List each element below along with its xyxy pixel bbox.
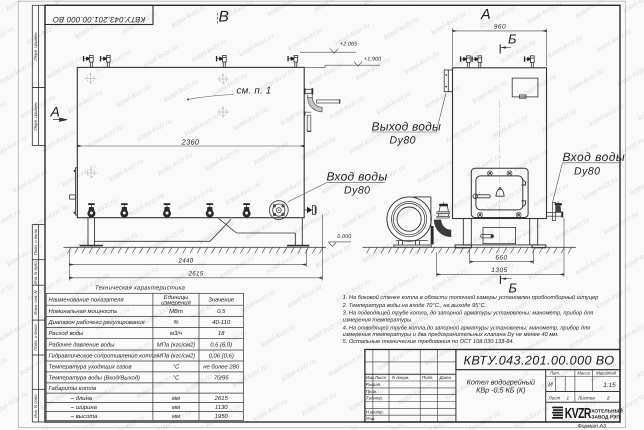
svg-text:0,6 (6,0): 0,6 (6,0) (210, 342, 232, 349)
svg-text:Н.контр.: Н.контр. (366, 409, 384, 414)
svg-text:Пров.: Пров. (366, 389, 377, 394)
svg-text:960: 960 (494, 24, 506, 31)
svg-text:Взам. инв. N: Взам. инв. N (33, 289, 38, 314)
svg-text:70/95: 70/95 (214, 375, 229, 382)
svg-text:%: % (173, 319, 178, 326)
svg-text:КОТЕЛЬНЫЙ: КОТЕЛЬНЫЙ (592, 408, 624, 415)
svg-text:Перв. примен.: Перв. примен. (33, 31, 38, 60)
svg-text:Лит.: Лит. (549, 371, 560, 376)
svg-text:Т.контр.: Т.контр. (366, 396, 383, 401)
svg-text:3. На подводящей трубе котла,: 3. На подводящей трубе котла, до запорно… (343, 310, 594, 317)
svg-text:Формат А3: Формат А3 (578, 424, 606, 430)
svg-text:Вход воды: Вход воды (563, 150, 626, 164)
svg-text:Утв.: Утв. (366, 416, 376, 421)
svg-text:2440: 2440 (178, 257, 194, 264)
svg-text:КВТУ.043.201.00.000 ВО: КВТУ.043.201.00.000 ВО (464, 354, 615, 368)
svg-text:– высота: – высота (70, 414, 98, 420)
svg-text:Габариты котла: Габариты котла (49, 385, 97, 392)
svg-text:В: В (219, 9, 229, 26)
svg-text:КВТУ.043.201.00.000 ВО: КВТУ.043.201.00.000 ВО (53, 15, 145, 24)
svg-text:1: 1 (567, 395, 570, 400)
svg-text:Рабочее давление воды: Рабочее давление воды (49, 342, 116, 349)
svg-text:Инв. N подл.: Инв. N подл. (33, 393, 38, 417)
svg-text:Расход воды: Расход воды (49, 330, 85, 337)
svg-text:2360: 2360 (181, 137, 200, 146)
svg-text:ЗАВОД РЭП: ЗАВОД РЭП (592, 415, 621, 421)
svg-text:Диапазон рабочего регулировани: Диапазон рабочего регулирования (48, 319, 146, 326)
svg-text:Значение: Значение (208, 297, 235, 304)
svg-text:– длина: – длина (70, 395, 93, 402)
svg-text:Техническая характеристика: Техническая характеристика (95, 285, 186, 292)
svg-text:– ширина: – ширина (70, 405, 98, 411)
svg-text:Масса: Масса (577, 371, 590, 376)
svg-text:мм: мм (172, 414, 180, 420)
svg-text:МВт: МВт (169, 308, 183, 315)
svg-text:1950: 1950 (215, 413, 229, 420)
svg-text:А: А (480, 7, 491, 23)
svg-text:Дата: Дата (439, 375, 452, 380)
svg-text:0,06 (0,6): 0,06 (0,6) (209, 353, 234, 360)
svg-text:А: А (50, 104, 60, 120)
svg-text:KVZR: KVZR (565, 406, 592, 422)
svg-text:Вход воды: Вход воды (327, 170, 388, 184)
svg-text:МПа (кгс/см2): МПа (кгс/см2) (157, 342, 196, 349)
svg-text:мм: мм (172, 396, 180, 402)
svg-text:1130: 1130 (215, 404, 228, 411)
svg-text:0,5: 0,5 (217, 308, 226, 315)
svg-text:МПа (кгс/см2): МПа (кгс/см2) (157, 353, 196, 360)
svg-text:измерения температуры.: измерения температуры. (343, 318, 413, 324)
svg-text:Инв. N дубл.: Инв. N дубл. (33, 260, 38, 284)
svg-text:Температура уходящих газов: Температура уходящих газов (49, 364, 132, 371)
svg-text:Разраб.: Разраб. (366, 382, 382, 387)
svg-text:°С: °С (173, 375, 180, 382)
svg-text:1. На боковой стенке котла в: 1. На боковой стенке котла в области топ… (343, 294, 599, 301)
svg-text:Подп. и дата: Подп. и дата (33, 324, 38, 351)
svg-text:Изм.Лист: Изм.Лист (366, 375, 387, 380)
svg-text:Масштаб: Масштаб (596, 371, 617, 376)
svg-text:2: 2 (606, 395, 610, 400)
svg-text:+2.065: +2.065 (340, 42, 358, 48)
svg-text:Наименование показателя: Наименование показателя (49, 297, 125, 304)
svg-text:Температура воды (Вход/Выход): Температура воды (Вход/Выход) (49, 375, 140, 382)
svg-text:измерения: измерения (161, 300, 191, 306)
svg-text:Dy80: Dy80 (390, 135, 417, 147)
svg-text:Подп. и дата: Подп. и дата (33, 228, 38, 255)
svg-text:измерения температуры и два пр: измерения температуры и два предохраните… (343, 331, 559, 338)
svg-text:Б: Б (509, 281, 518, 296)
svg-text:N докум.: N докум. (392, 375, 409, 380)
svg-text:Номинальная мощность: Номинальная мощность (49, 308, 118, 315)
svg-text:4. На отводящей трубе котла,д: 4. На отводящей трубе котла,до запорной … (343, 324, 590, 331)
svg-text:Б: Б (508, 32, 517, 47)
svg-text:Гидравлическое сопротивление к: Гидравлическое сопротивление котла (49, 353, 158, 360)
svg-text:Выход воды: Выход воды (372, 120, 441, 134)
svg-text:40-110: 40-110 (212, 319, 231, 326)
svg-text:2615: 2615 (214, 395, 229, 402)
svg-text:1:15: 1:15 (603, 382, 616, 389)
svg-text:°С: °С (173, 364, 180, 371)
svg-text:см. п. 1: см. п. 1 (237, 86, 272, 97)
svg-text:Перв. примен.: Перв. примен. (33, 101, 38, 130)
svg-text:Подп.: Подп. (422, 375, 433, 380)
svg-text:Лист: Лист (548, 395, 561, 400)
svg-text:Dy80: Dy80 (574, 166, 601, 178)
svg-text:+1.900: +1.900 (364, 56, 381, 62)
svg-text:Листов: Листов (577, 395, 595, 400)
svg-text:не более 280: не более 280 (203, 364, 240, 371)
svg-text:2615: 2615 (188, 271, 204, 278)
svg-text:мм: мм (172, 405, 180, 411)
svg-text:И: И (548, 381, 553, 388)
svg-text:5. Остальные технические треб: 5. Остальные технические требования по О… (343, 338, 514, 345)
svg-text:0.000: 0.000 (337, 234, 351, 240)
svg-text:2. Температура воды на входе: 2. Температура воды на входе 70°С., на в… (342, 302, 487, 309)
svg-text:Dy80: Dy80 (344, 185, 371, 197)
svg-text:КВр -0,5 КБ (К): КВр -0,5 КБ (К) (476, 385, 525, 394)
svg-text:м3/ч: м3/ч (170, 330, 182, 337)
svg-text:1305: 1305 (491, 267, 507, 274)
svg-text:660: 660 (495, 254, 507, 261)
svg-text:18: 18 (218, 330, 225, 337)
